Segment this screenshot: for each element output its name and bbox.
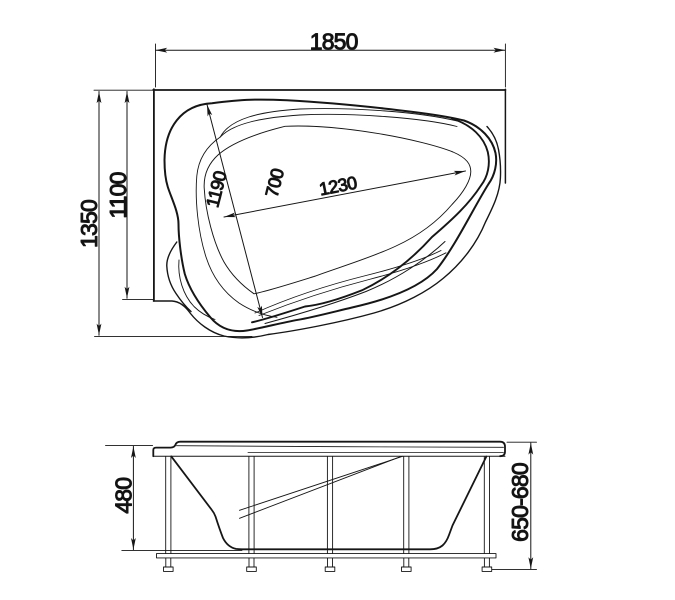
svg-text:1850: 1850 bbox=[310, 29, 358, 55]
svg-text:480: 480 bbox=[110, 478, 136, 514]
svg-text:1350: 1350 bbox=[76, 200, 102, 248]
svg-text:1190: 1190 bbox=[202, 169, 230, 210]
svg-text:650-680: 650-680 bbox=[507, 463, 533, 542]
svg-text:1100: 1100 bbox=[105, 172, 131, 218]
svg-text:700: 700 bbox=[262, 166, 288, 199]
svg-text:1230: 1230 bbox=[317, 172, 358, 199]
